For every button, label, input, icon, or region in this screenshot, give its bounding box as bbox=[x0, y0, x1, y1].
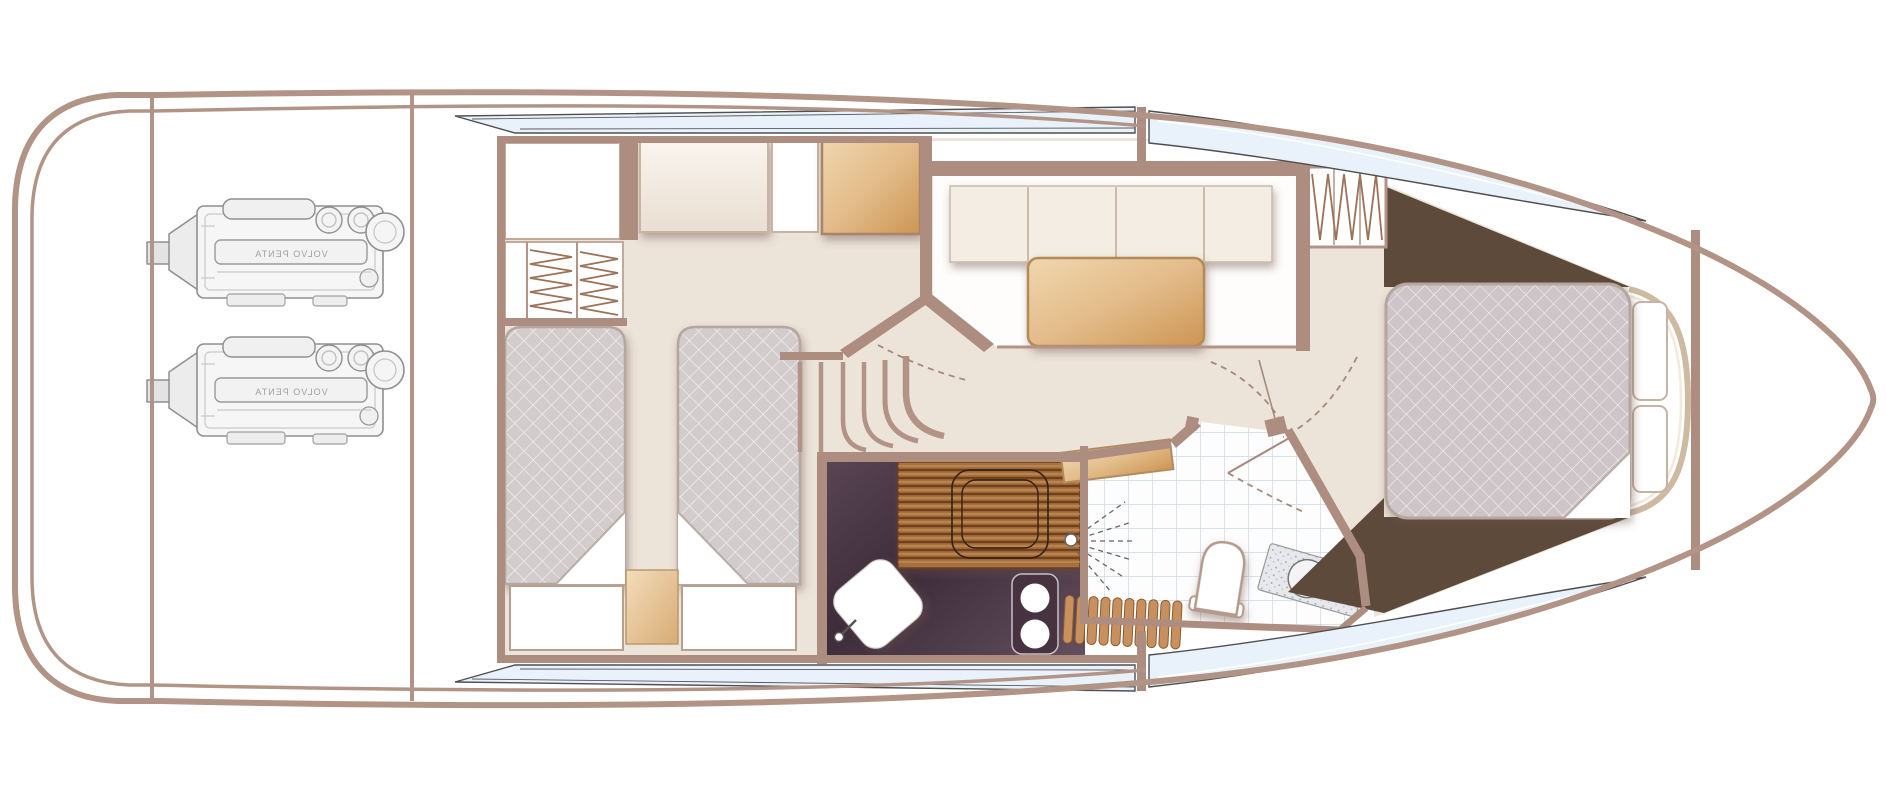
sofa-cushions bbox=[950, 186, 1272, 262]
wood-cabinet-top bbox=[822, 138, 920, 234]
gunwale-inner-line bbox=[32, 111, 152, 685]
wall bbox=[926, 161, 1310, 176]
port-engine bbox=[147, 199, 404, 306]
wall bbox=[817, 452, 827, 664]
twin-bed-right bbox=[678, 327, 800, 584]
yacht-floorplan: VOLVO PENTA bbox=[0, 0, 1886, 798]
floorplan-drawing: VOLVO PENTA bbox=[0, 0, 1886, 798]
starboard-engine bbox=[147, 337, 404, 444]
forward-bulkhead bbox=[1691, 230, 1700, 570]
wall bbox=[817, 452, 1085, 462]
wall bbox=[620, 136, 638, 240]
wall bbox=[1080, 446, 1088, 624]
bedside-pillow bbox=[1633, 406, 1667, 492]
wall bbox=[1296, 161, 1310, 351]
wardrobe-aft bbox=[505, 242, 623, 322]
salon-dinette bbox=[933, 176, 1296, 347]
footboard-left bbox=[510, 586, 623, 650]
twin-bed-left bbox=[505, 327, 625, 584]
wardrobe-forward bbox=[1308, 167, 1386, 247]
footboard-right bbox=[682, 586, 796, 650]
wall bbox=[497, 318, 627, 326]
wall bbox=[920, 136, 932, 300]
bedside-pillow bbox=[1633, 302, 1667, 400]
galley-counter-wood bbox=[898, 462, 1080, 568]
galley-stove bbox=[1012, 574, 1058, 654]
wall bbox=[497, 136, 505, 662]
galley bbox=[826, 456, 1085, 660]
cabinet-white bbox=[772, 140, 818, 232]
dinette-table bbox=[1028, 258, 1204, 346]
wall bbox=[497, 655, 1140, 663]
master-bed bbox=[1386, 284, 1630, 518]
wood-step bbox=[626, 570, 678, 644]
burner-icon bbox=[1021, 584, 1050, 613]
burner-icon bbox=[1021, 620, 1050, 649]
wall bbox=[497, 136, 932, 143]
closet bbox=[505, 143, 620, 239]
cabinet-cream bbox=[640, 140, 768, 232]
wall bbox=[780, 352, 843, 360]
